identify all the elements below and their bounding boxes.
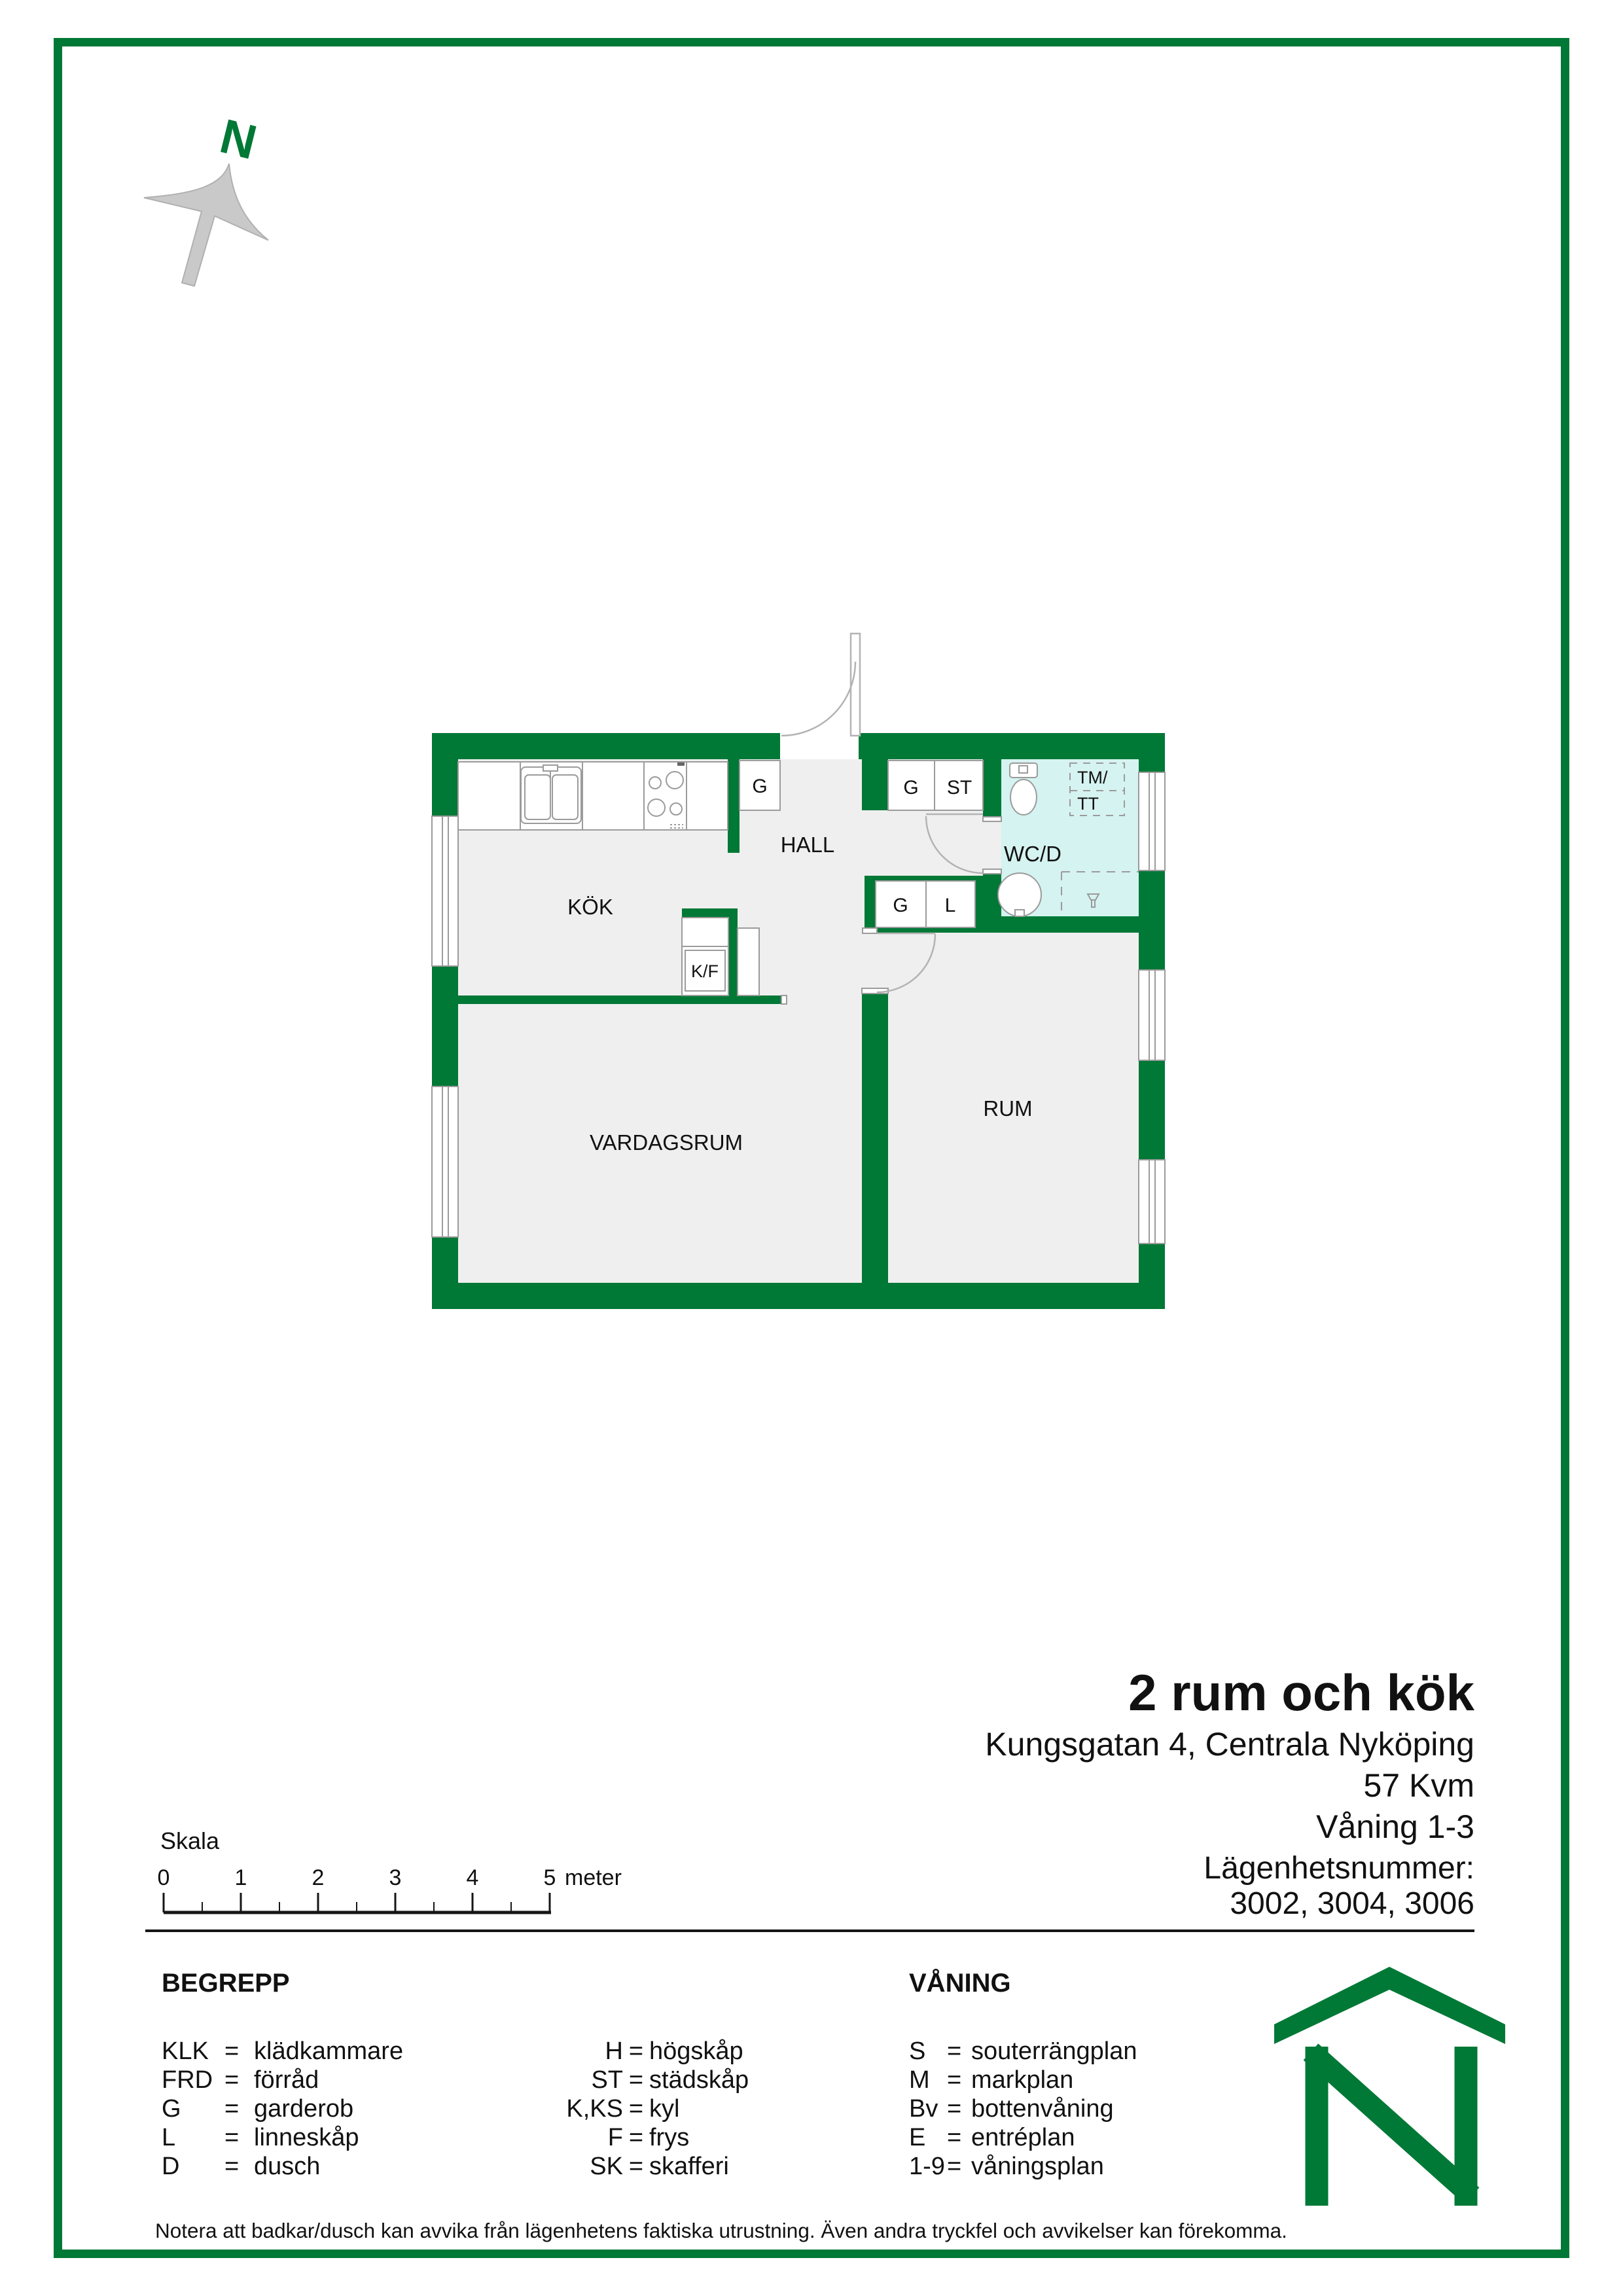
area: 57 Kvm	[985, 1765, 1474, 1806]
label-wardrobe-hall-lower: G	[893, 895, 908, 916]
equals-sign: =	[224, 2124, 254, 2152]
scale-bar: 0 1 2 3 4 5 meter	[154, 1860, 638, 1919]
legend-def: städskåp	[649, 2066, 749, 2094]
label-linen-closet: L	[945, 895, 956, 916]
label-cleaning-closet: ST	[947, 777, 972, 798]
equals-sign: =	[947, 2066, 971, 2094]
window-right-wc	[1139, 772, 1165, 870]
room-label-livingroom: VARDAGSRUM	[590, 1130, 743, 1155]
window-right-room-lower	[1139, 1160, 1165, 1244]
legend-abbr: G	[162, 2095, 224, 2123]
legend-row: SK=skafferi	[458, 2152, 749, 2181]
legend-abbr: M	[909, 2066, 947, 2094]
entrance-door	[781, 634, 860, 736]
kitchen-counter	[458, 762, 728, 830]
room-label-hall: HALL	[781, 833, 835, 857]
equals-sign: =	[947, 2095, 971, 2123]
divider-line	[145, 1929, 1474, 1932]
room-label-kitchen: KÖK	[567, 895, 613, 919]
equals-sign: =	[224, 2095, 254, 2123]
apartment-numbers: Lägenhetsnummer: 3002, 3004, 3006	[1204, 1851, 1474, 1922]
legend-row: E=entréplan	[909, 2123, 1137, 2152]
legend-row: 1-9=våningsplan	[909, 2152, 1137, 2181]
legend-abbr: E	[909, 2124, 947, 2152]
equals-sign: =	[224, 2153, 254, 2181]
legend-def: våningsplan	[971, 2153, 1104, 2181]
north-arrow-icon	[144, 164, 268, 286]
scale-tick-0: 0	[158, 1865, 170, 1890]
legend-abbr: K,KS	[458, 2095, 623, 2123]
begrepp-column-2: H=högskåp ST=städskåp K,KS=kyl F=frys SK…	[458, 2037, 749, 2181]
legend-abbr: 1-9	[909, 2153, 947, 2181]
legend-abbr: KLK	[162, 2037, 224, 2066]
equals-sign: =	[623, 2066, 649, 2094]
legend-def: kyl	[649, 2095, 679, 2123]
legend-row: FRD=förråd	[162, 2066, 403, 2094]
legend-row: F=frys	[458, 2123, 749, 2152]
legend-row: H=högskåp	[458, 2037, 749, 2066]
legend-abbr: D	[162, 2153, 224, 2181]
window-left-kitchen	[432, 816, 458, 966]
legend-def: linneskåp	[254, 2124, 359, 2152]
label-washer-line1: TM/	[1077, 768, 1108, 787]
wall-cap	[983, 869, 1001, 874]
sink-icon	[521, 765, 581, 823]
legend-abbr: FRD	[162, 2066, 224, 2094]
legend-def: dusch	[254, 2153, 320, 2181]
legend-abbr: Bv	[909, 2095, 947, 2123]
legend-row: K,KS=kyl	[458, 2094, 749, 2123]
equals-sign: =	[224, 2066, 254, 2094]
begrepp-heading: BEGREPP	[162, 1969, 290, 1998]
label-wardrobe-kitchen: G	[752, 776, 767, 797]
legend-def: bottenvåning	[971, 2095, 1114, 2123]
fridge-freezer-unit	[682, 918, 728, 996]
vaning-column: S=souterrängplan M=markplan Bv=bottenvån…	[909, 2037, 1137, 2181]
legend-def: förråd	[254, 2066, 319, 2094]
scale-tick-5: 5	[544, 1865, 556, 1890]
scale-tick-1: 1	[235, 1865, 247, 1890]
footer-note: Notera att badkar/dusch kan avvika från …	[155, 2219, 1287, 2243]
legend-def: garderob	[254, 2095, 353, 2123]
logo-n-letter	[1311, 2047, 1472, 2206]
equals-sign: =	[623, 2037, 649, 2066]
room-label-wc: WC/D	[1004, 842, 1061, 866]
legend-abbr: H	[458, 2037, 623, 2066]
equals-sign: =	[947, 2153, 971, 2181]
title-block: 2 rum och kök Kungsgatan 4, Centrala Nyk…	[985, 1661, 1474, 1848]
legend-row: S=souterrängplan	[909, 2037, 1137, 2066]
hall-closet-stub	[862, 759, 888, 810]
legend-abbr: ST	[458, 2066, 623, 2094]
window-right-room-upper	[1139, 970, 1165, 1060]
legend-def: högskåp	[649, 2037, 743, 2066]
wall-cap	[862, 988, 888, 994]
washbasin-icon	[998, 873, 1041, 916]
scale-unit: meter	[565, 1865, 622, 1890]
legend-row: KLK=klädkammare	[162, 2037, 403, 2066]
label-wardrobe-hall-top: G	[903, 777, 918, 798]
scale-tick-3: 3	[389, 1865, 402, 1890]
scale-label: Skala	[160, 1827, 219, 1855]
company-logo-icon	[1266, 1960, 1515, 2215]
apartment-numbers-values: 3002, 3004, 3006	[1204, 1886, 1474, 1922]
legend-abbr: L	[162, 2124, 224, 2152]
legend-row: M=markplan	[909, 2066, 1137, 2094]
legend-abbr: SK	[458, 2153, 623, 2181]
kitchen-shelf-unit	[738, 928, 759, 996]
room-label-room: RUM	[983, 1096, 1032, 1121]
begrepp-column-1: KLK=klädkammare FRD=förråd G=garderob L=…	[162, 2037, 403, 2181]
logo-roof	[1274, 1967, 1505, 2044]
window-left-livingroom	[432, 1086, 458, 1237]
apartment-numbers-label: Lägenhetsnummer:	[1204, 1851, 1474, 1886]
equals-sign: =	[224, 2037, 254, 2066]
floors: Våning 1-3	[985, 1806, 1474, 1848]
floorplan: KÖK HALL WC/D RUM VARDAGSRUM G G ST G L …	[425, 622, 1171, 1316]
central-wall	[862, 993, 888, 1283]
legend-abbr: F	[458, 2124, 623, 2152]
kitchen-partition-stub	[728, 759, 740, 853]
page-title: 2 rum och kök	[985, 1661, 1474, 1724]
equals-sign: =	[623, 2153, 649, 2181]
toilet-icon	[1010, 763, 1037, 815]
legend-def: frys	[649, 2124, 689, 2152]
wc-wall-upper	[983, 759, 1001, 821]
scale-tick-2: 2	[312, 1865, 325, 1890]
label-washer-line2: TT	[1077, 794, 1099, 814]
wall-cap	[781, 996, 787, 1004]
equals-sign: =	[623, 2095, 649, 2123]
kf-side-wall	[728, 908, 738, 1004]
label-fridge-freezer: K/F	[691, 961, 719, 981]
wall-cap	[863, 928, 877, 933]
legend-def: skafferi	[649, 2153, 729, 2181]
legend-def: klädkammare	[254, 2037, 403, 2066]
north-compass: N	[124, 85, 308, 301]
legend-def: markplan	[971, 2066, 1073, 2094]
wall-cap	[983, 817, 1001, 821]
legend-row: L=linneskåp	[162, 2123, 403, 2152]
legend-row: G=garderob	[162, 2094, 403, 2123]
wc-wall-lower	[983, 874, 1001, 933]
scale-tick-4: 4	[467, 1865, 479, 1890]
legend-def: souterrängplan	[971, 2037, 1137, 2066]
legend-row: ST=städskåp	[458, 2066, 749, 2094]
compass-north-letter: N	[215, 109, 262, 170]
equals-sign: =	[947, 2037, 971, 2066]
equals-sign: =	[947, 2124, 971, 2152]
address: Kungsgatan 4, Centrala Nyköping	[985, 1724, 1474, 1765]
legend-row: D=dusch	[162, 2152, 403, 2181]
equals-sign: =	[623, 2124, 649, 2152]
legend-def: entréplan	[971, 2124, 1075, 2152]
legend-row: Bv=bottenvåning	[909, 2094, 1137, 2123]
legend-abbr: S	[909, 2037, 947, 2066]
wc-bottom-wall	[1001, 916, 1139, 933]
vaning-heading: VÅNING	[909, 1969, 1011, 1998]
